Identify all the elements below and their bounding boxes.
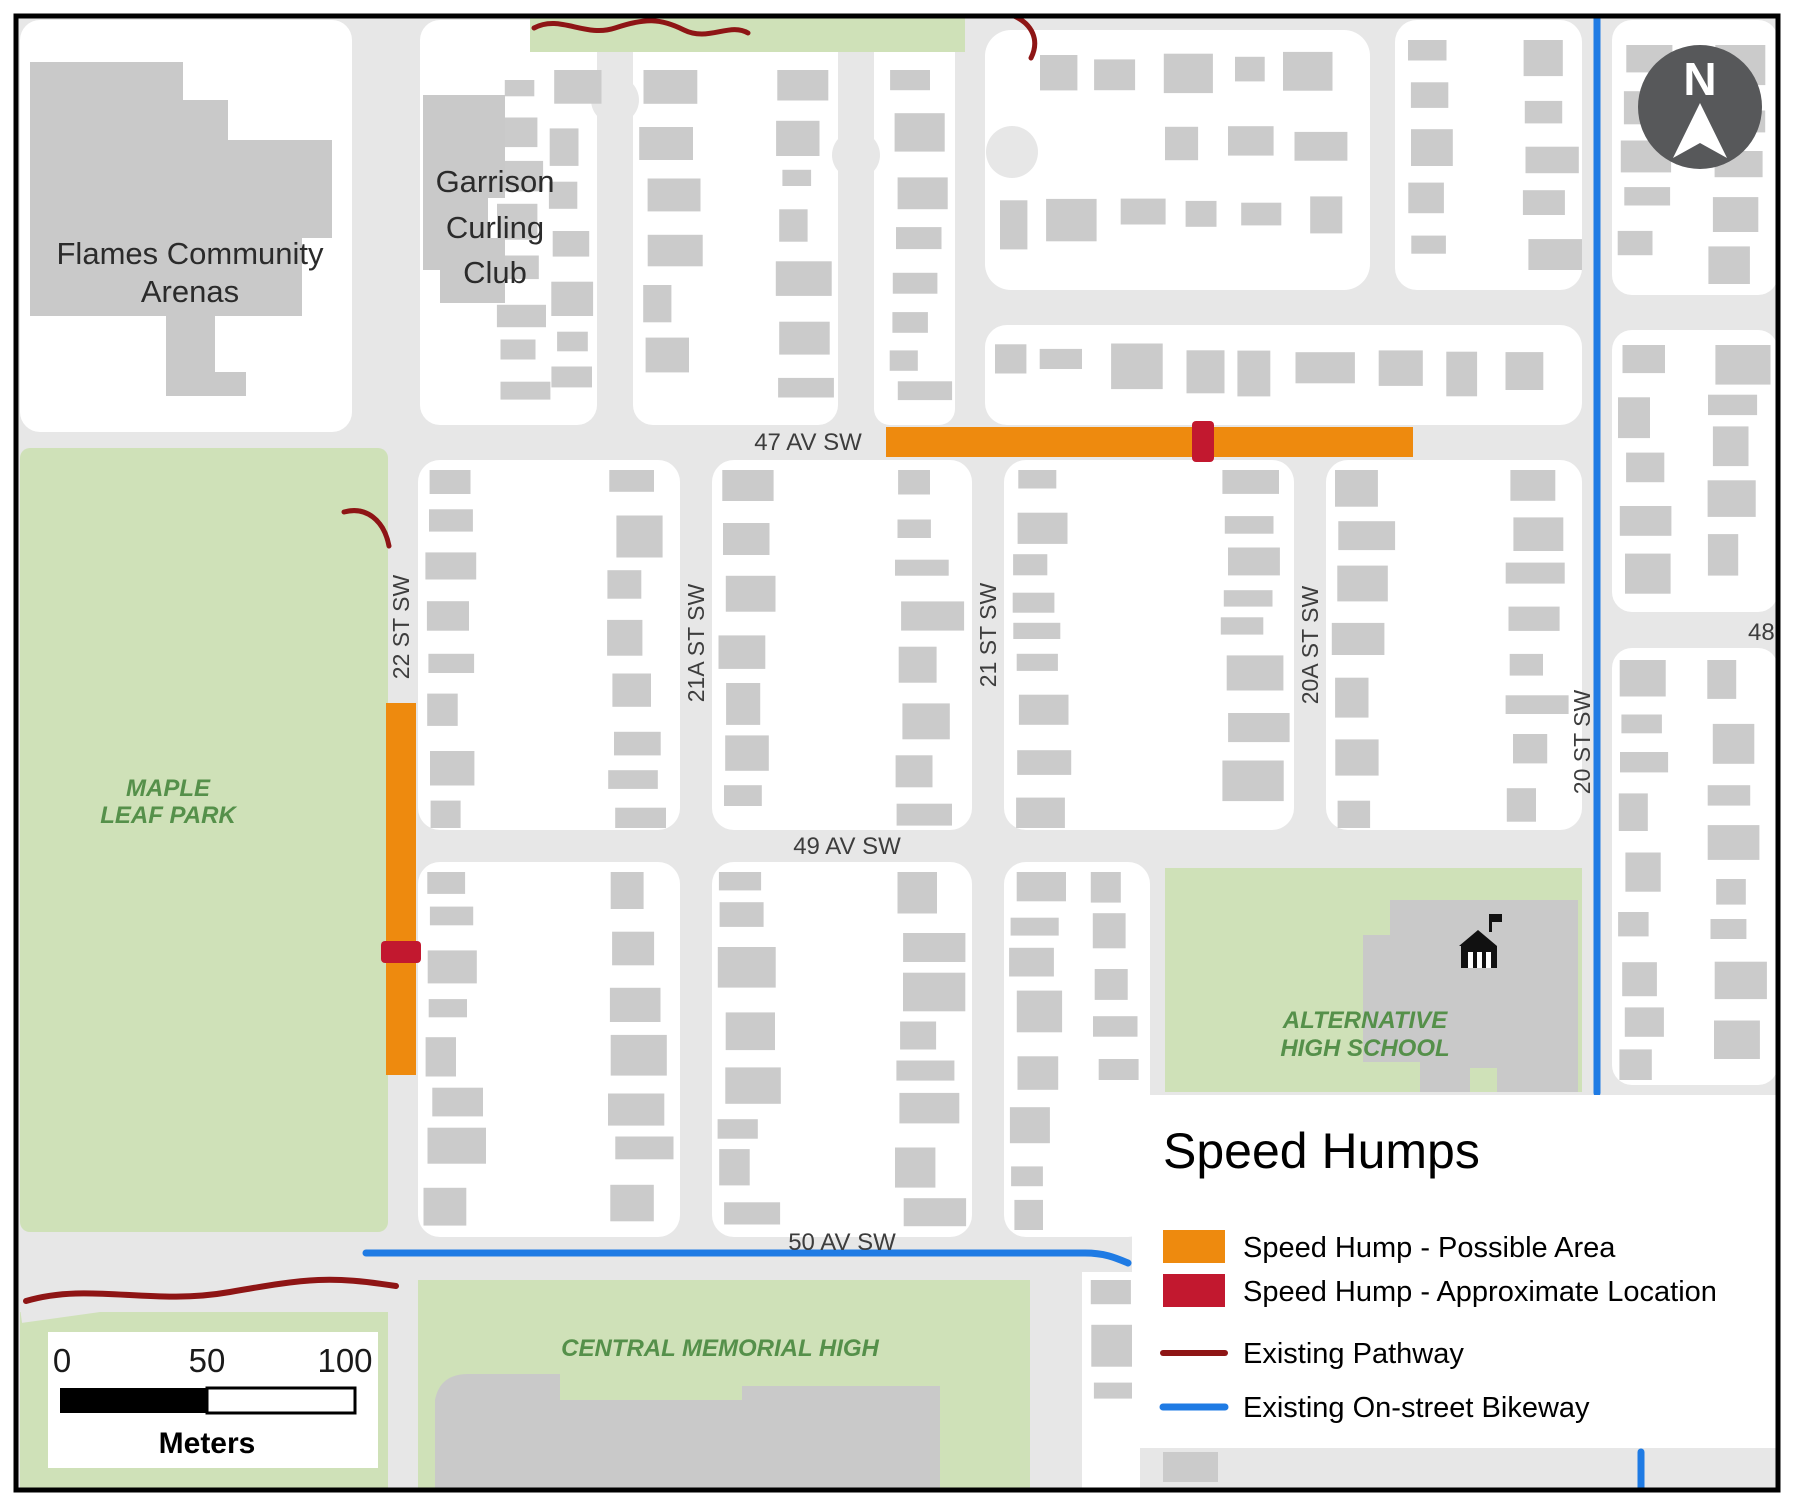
- building: [646, 338, 689, 373]
- building: [1524, 40, 1563, 76]
- building: [1715, 962, 1767, 999]
- building: [1224, 590, 1273, 606]
- building: [1228, 126, 1274, 155]
- building: [1093, 1016, 1138, 1036]
- building: [1009, 948, 1054, 977]
- building: [610, 1185, 654, 1222]
- building: [1411, 82, 1448, 108]
- building: [1094, 1383, 1135, 1399]
- building: [895, 113, 945, 151]
- building: [1619, 1049, 1651, 1080]
- scale-unit-label: Meters: [159, 1427, 256, 1460]
- building: [1408, 40, 1447, 61]
- building: [1227, 655, 1284, 690]
- building: [427, 872, 465, 894]
- building: [557, 332, 588, 352]
- building: [614, 732, 661, 756]
- building: [890, 70, 930, 90]
- building: [1528, 239, 1582, 270]
- street-label-20st: 20 ST SW: [1569, 690, 1595, 795]
- building: [719, 872, 761, 890]
- building: [898, 872, 938, 914]
- building: [501, 382, 551, 400]
- legend-swatch-possible: [1163, 1230, 1225, 1263]
- building: [898, 381, 952, 400]
- building: [428, 950, 477, 983]
- building: [1379, 350, 1423, 386]
- building: [725, 1067, 781, 1103]
- building: [608, 770, 658, 789]
- building: [1506, 695, 1569, 714]
- building: [1620, 660, 1666, 697]
- building: [1711, 919, 1747, 939]
- building: [1163, 1452, 1218, 1482]
- building: [554, 70, 601, 104]
- speed-hump-location-47av: [1192, 421, 1214, 462]
- building: [1624, 187, 1670, 205]
- street-label-20ast: 20A ST SW: [1297, 585, 1323, 704]
- building: [611, 1035, 667, 1076]
- building: [1708, 785, 1751, 805]
- building: [1716, 879, 1746, 905]
- building: [1187, 350, 1225, 393]
- building: [1713, 197, 1758, 232]
- building: [1094, 59, 1135, 90]
- building: [1625, 1007, 1664, 1036]
- building: [1510, 654, 1543, 676]
- building: [898, 177, 948, 209]
- building: [895, 1148, 935, 1188]
- building: [904, 1198, 966, 1226]
- building: [639, 127, 693, 160]
- building: [1523, 190, 1565, 215]
- building: [1011, 1166, 1043, 1186]
- building: [430, 751, 474, 786]
- building: [1708, 246, 1750, 284]
- building: [1011, 918, 1059, 936]
- building: [427, 694, 458, 726]
- building: [722, 470, 773, 501]
- label-garrison-line1: Garrison: [436, 164, 555, 199]
- building: [1332, 623, 1385, 655]
- building: [719, 635, 766, 669]
- building: [1446, 352, 1477, 397]
- building: [1222, 761, 1283, 802]
- building: [608, 1094, 664, 1126]
- building: [895, 560, 949, 576]
- scale-tick-50: 50: [189, 1342, 226, 1379]
- building: [1708, 480, 1756, 517]
- maple-leaf-park: [20, 448, 388, 1232]
- building: [607, 620, 642, 656]
- building: [1121, 199, 1166, 225]
- building: [1713, 426, 1749, 466]
- legend-label-bikeway: Existing On-street Bikeway: [1243, 1392, 1590, 1424]
- building: [500, 118, 538, 148]
- label-maple-line2: LEAF PARK: [100, 802, 237, 829]
- building: [1335, 678, 1368, 718]
- building: [1507, 788, 1536, 822]
- street-label-21st: 21 ST SW: [975, 583, 1001, 688]
- building: [1111, 344, 1163, 390]
- building: [430, 470, 471, 494]
- building: [551, 282, 593, 316]
- building: [1310, 196, 1342, 233]
- building: [612, 674, 651, 707]
- building: [1526, 147, 1579, 174]
- building: [1618, 912, 1649, 936]
- building: [1018, 513, 1068, 544]
- building: [1228, 713, 1290, 742]
- building: [426, 1037, 456, 1076]
- building: [1506, 352, 1544, 390]
- building: [726, 1012, 775, 1050]
- building: [902, 703, 949, 739]
- building: [1228, 548, 1280, 576]
- building: [897, 804, 952, 826]
- building: [1335, 470, 1378, 507]
- traffic-calming-map: 47 AV SW 49 AV SW 50 AV SW 22 ST SW 21A …: [0, 0, 1800, 1500]
- building: [615, 808, 666, 828]
- building: [1623, 345, 1666, 373]
- building: [1241, 203, 1281, 226]
- building: [1018, 1056, 1059, 1090]
- building: [1408, 183, 1444, 214]
- building: [1046, 199, 1097, 241]
- building: [609, 470, 654, 492]
- building: [720, 902, 764, 927]
- building: [718, 1119, 758, 1139]
- building: [1019, 695, 1069, 725]
- building: [1091, 1280, 1131, 1304]
- building: [1513, 517, 1563, 551]
- building: [898, 470, 930, 495]
- building: [1017, 872, 1066, 901]
- building: [1235, 57, 1265, 82]
- legend-title: Speed Humps: [1163, 1123, 1480, 1179]
- north-arrow: N: [1638, 45, 1762, 169]
- arena-annex: [178, 348, 212, 394]
- label-maple-line1: MAPLE: [126, 775, 211, 802]
- building: [643, 285, 671, 322]
- legend-label-pathway: Existing Pathway: [1243, 1338, 1464, 1370]
- building: [1620, 752, 1668, 772]
- building: [1095, 969, 1128, 1000]
- building: [896, 227, 942, 249]
- speed-hump-possible-22st: [386, 703, 416, 1075]
- building: [1013, 593, 1055, 613]
- building: [779, 209, 807, 241]
- scale-tick-100: 100: [317, 1342, 372, 1379]
- building: [551, 367, 592, 388]
- building: [1000, 200, 1027, 249]
- building: [1626, 453, 1664, 483]
- building: [1625, 554, 1671, 594]
- building: [1513, 734, 1547, 763]
- building: [726, 576, 776, 612]
- building: [892, 312, 928, 333]
- building: [890, 350, 918, 370]
- building: [1010, 1107, 1050, 1143]
- building: [1237, 351, 1270, 397]
- map-page: 47 AV SW 49 AV SW 50 AV SW 22 ST SW 21A …: [0, 0, 1800, 1500]
- building: [1222, 470, 1279, 494]
- street-label-49av: 49 AV SW: [793, 833, 901, 860]
- building: [1714, 1021, 1760, 1060]
- building: [1708, 534, 1738, 576]
- building: [1017, 991, 1062, 1033]
- building: [1091, 872, 1121, 903]
- building: [777, 70, 828, 101]
- building: [550, 128, 579, 166]
- building: [1165, 127, 1198, 160]
- building: [610, 988, 661, 1022]
- legend-label-location: Speed Hump - Approximate Location: [1243, 1276, 1717, 1308]
- building: [1411, 236, 1446, 254]
- building: [776, 261, 832, 296]
- building: [1411, 129, 1453, 166]
- label-flames-line1: Flames Community: [57, 236, 324, 271]
- speed-hump-location-22st: [381, 941, 421, 963]
- street-label-48av-partial: 48: [1748, 619, 1775, 646]
- building: [553, 231, 590, 257]
- building: [1619, 793, 1648, 831]
- building: [615, 1137, 673, 1160]
- building: [432, 1088, 483, 1117]
- building: [1283, 52, 1333, 91]
- scale-tick-0: 0: [53, 1342, 71, 1379]
- building: [1510, 470, 1555, 501]
- building: [616, 516, 662, 558]
- building: [424, 1188, 467, 1226]
- building: [1014, 1200, 1043, 1230]
- building: [1621, 715, 1662, 734]
- building: [425, 552, 476, 579]
- building: [782, 170, 811, 186]
- street-label-22st: 22 ST SW: [388, 575, 414, 680]
- legend-box: Speed Humps Speed Hump - Possible Area S…: [1132, 1095, 1778, 1448]
- building: [726, 683, 760, 725]
- label-central-memorial: CENTRAL MEMORIAL HIGH: [561, 1335, 879, 1362]
- building: [1525, 101, 1562, 124]
- building: [903, 933, 965, 962]
- building: [427, 601, 469, 631]
- building: [1708, 825, 1760, 860]
- building: [431, 801, 461, 828]
- building: [724, 785, 762, 806]
- building: [505, 80, 535, 96]
- building: [1622, 962, 1657, 996]
- street-label-50av: 50 AV SW: [788, 1229, 896, 1256]
- building: [1164, 54, 1213, 93]
- building: [644, 70, 698, 104]
- label-alternative-line2: HIGH SCHOOL: [1280, 1035, 1449, 1062]
- building: [1715, 345, 1770, 385]
- building: [900, 1022, 936, 1050]
- building: [899, 1093, 959, 1124]
- building: [896, 1061, 954, 1081]
- building: [1335, 739, 1378, 775]
- building: [1338, 801, 1371, 828]
- building: [430, 907, 473, 926]
- building: [1707, 660, 1736, 699]
- building: [1016, 798, 1065, 828]
- building: [898, 520, 931, 539]
- label-garrison-line3: Club: [463, 255, 527, 290]
- building: [1091, 1325, 1132, 1367]
- building: [719, 1149, 750, 1185]
- building: [429, 509, 473, 531]
- legend-label-possible: Speed Hump - Possible Area: [1243, 1232, 1616, 1264]
- building: [1018, 470, 1056, 489]
- scale-bar: 0 50 100 Meters: [48, 1332, 378, 1468]
- building: [1225, 516, 1274, 534]
- building: [1295, 132, 1348, 161]
- building: [779, 322, 830, 355]
- label-garrison-line2: Curling: [446, 210, 544, 245]
- building: [1099, 1059, 1139, 1080]
- building: [1013, 554, 1047, 575]
- building: [725, 735, 769, 770]
- building: [648, 235, 703, 266]
- building: [1337, 566, 1388, 602]
- building: [901, 601, 964, 630]
- building: [648, 179, 701, 212]
- building: [896, 755, 933, 787]
- building: [428, 1128, 487, 1164]
- label-alternative-line1: ALTERNATIVE: [1282, 1007, 1448, 1034]
- building: [1040, 349, 1082, 369]
- building: [1618, 231, 1653, 255]
- building: [1017, 654, 1058, 671]
- building: [778, 378, 834, 398]
- building: [1296, 352, 1355, 383]
- building: [607, 570, 641, 599]
- building: [1013, 623, 1060, 639]
- building: [1708, 395, 1757, 415]
- legend-swatch-location: [1163, 1274, 1225, 1307]
- speed-hump-possible-47av: [886, 427, 1413, 457]
- building: [1093, 913, 1126, 948]
- building: [1186, 201, 1217, 227]
- street-label-21ast: 21A ST SW: [683, 583, 709, 702]
- building: [1509, 607, 1560, 631]
- building: [1506, 563, 1565, 584]
- building: [1338, 521, 1395, 550]
- building: [1713, 724, 1755, 764]
- building: [776, 121, 819, 156]
- building: [1618, 397, 1650, 438]
- street-label-47av: 47 AV SW: [754, 429, 862, 456]
- north-letter: N: [1683, 53, 1716, 105]
- building: [1625, 853, 1660, 892]
- building: [1221, 617, 1264, 634]
- label-flames-line2: Arenas: [141, 274, 239, 309]
- building: [903, 973, 965, 1012]
- building: [497, 305, 546, 327]
- building: [995, 344, 1026, 373]
- building: [428, 654, 474, 673]
- building: [899, 647, 937, 683]
- building: [1017, 750, 1071, 775]
- building: [1040, 55, 1077, 90]
- building: [1620, 506, 1672, 536]
- building: [893, 273, 938, 294]
- building: [718, 947, 776, 988]
- building: [723, 523, 770, 555]
- building: [429, 999, 467, 1017]
- building: [724, 1202, 780, 1224]
- building: [501, 340, 536, 360]
- building: [612, 932, 654, 966]
- building: [611, 872, 644, 909]
